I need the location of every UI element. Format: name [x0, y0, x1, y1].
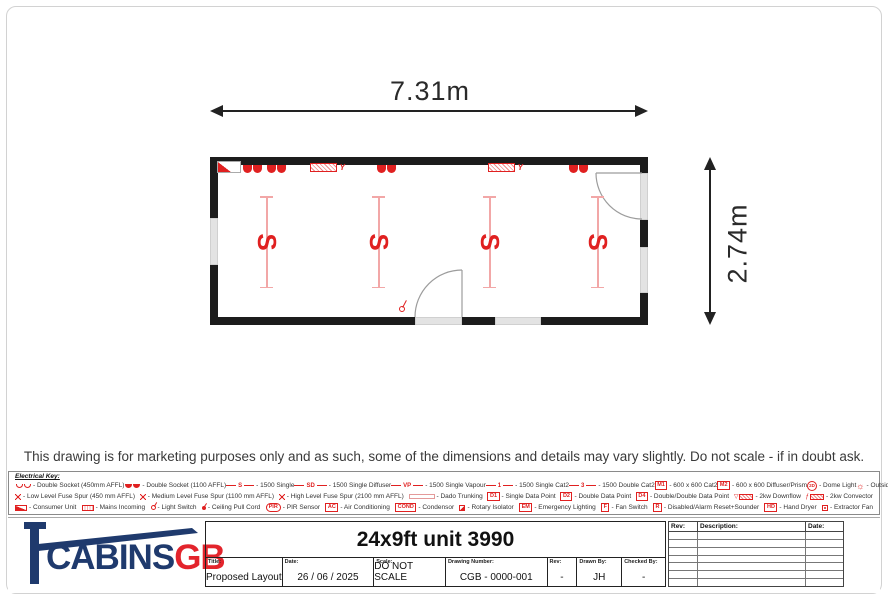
- pullcord-icon: [202, 506, 206, 510]
- strip-light-label: S: [366, 233, 392, 250]
- line-icon: 1: [486, 483, 513, 489]
- switch-icon: [151, 505, 156, 510]
- box-icon: D2: [560, 492, 572, 501]
- key-item: M1- 600 x 600 Cat2: [655, 481, 718, 490]
- line-icon: S: [226, 483, 254, 489]
- consumer-unit-icon: [217, 161, 241, 173]
- box-icon: D1: [487, 492, 499, 501]
- strip-light-label: S: [254, 233, 280, 250]
- key-item-label: - 1500 Single Diffuser: [329, 482, 391, 489]
- dado-icon: [409, 494, 435, 499]
- field-scale: Scale:DO NOT SCALE: [373, 558, 445, 586]
- electrical-key-title: Electrical Key:: [15, 473, 873, 480]
- key-item-label: - Fan Switch: [611, 504, 647, 511]
- key-item-label: - Emergency Lighting: [534, 504, 595, 511]
- humps-f-icon: [124, 484, 140, 488]
- field-drawingnumber: Drawing Number:CGB - 0000-001: [445, 558, 547, 586]
- field-value: 26 / 06 / 2025: [297, 572, 358, 583]
- box-icon: F: [601, 503, 609, 512]
- light-switch-icon: [399, 306, 405, 312]
- key-item-label: - Double Data Point: [574, 493, 631, 500]
- revision-header: Description:: [697, 522, 805, 531]
- logo-cabins: CABINS: [46, 538, 174, 577]
- window-left: [210, 218, 218, 265]
- double-socket-icon: [377, 165, 396, 173]
- key-item: COND- Condensor: [395, 503, 454, 512]
- key-item-label: - Mains Incoming: [96, 504, 146, 511]
- key-item: - Medium Level Fuse Spur (1100 mm AFFL): [140, 493, 274, 500]
- key-item: R- Disabled/Alarm Reset+Sounder: [653, 503, 759, 512]
- key-item: - 2kw Downflow: [734, 493, 801, 500]
- key-item-label: - 1500 Single Vapour: [425, 482, 486, 489]
- key-item: 2D- Dome Light: [807, 481, 856, 491]
- height-dimension-label: 2.74m: [723, 164, 754, 324]
- revision-row: [669, 540, 843, 548]
- key-item-label: - Medium Level Fuse Spur (1100 mm AFFL): [148, 493, 274, 500]
- field-value: CGB - 0000-001: [460, 572, 533, 583]
- cabinsgb-logo: CABINSGB: [22, 520, 217, 590]
- key-item-label: - Air Conditioning: [340, 504, 390, 511]
- key-item: - Rotary Isolator: [459, 504, 513, 511]
- key-item: - Low Level Fuse Spur (450 mm AFFL): [15, 493, 135, 500]
- line-icon: VP: [391, 483, 423, 489]
- circle-icon: 2D: [807, 481, 817, 491]
- key-item-label: - 1500 Single: [256, 482, 294, 489]
- field-checkedby: Checked By:-: [621, 558, 665, 586]
- key-item: - Consumer Unit: [15, 504, 76, 511]
- key-item-label: - High Level Fuse Spur (2100 mm AFFL): [287, 493, 404, 500]
- key-item: D4- Double/Double Data Point: [636, 492, 729, 501]
- key-item-label: - Ceiling Pull Cord: [208, 504, 260, 511]
- field-label: Title:: [208, 559, 221, 565]
- key-item-label: - Disabled/Alarm Reset+Sounder: [664, 504, 759, 511]
- strip-light: S: [368, 196, 390, 288]
- revision-row: [669, 556, 843, 564]
- key-item-label: - Hand Dryer: [779, 504, 816, 511]
- convector-heater-icon: [488, 163, 515, 172]
- consumer-icon: [15, 505, 27, 511]
- revision-row: [669, 563, 843, 571]
- double-socket-icon: [243, 165, 262, 173]
- extractor-icon: [822, 505, 828, 511]
- line-icon: 3: [569, 483, 596, 489]
- revision-row: [669, 532, 843, 540]
- key-row: - Low Level Fuse Spur (450 mm AFFL)- Med…: [15, 491, 873, 502]
- key-item-label: - Dado Trunking: [437, 493, 483, 500]
- key-item-label: - Double/Double Data Point: [650, 493, 729, 500]
- key-item: - Extractor Fan: [822, 504, 873, 511]
- mains-icon: [82, 505, 94, 511]
- field-label: Scale:: [376, 559, 392, 565]
- revision-row: [669, 571, 843, 579]
- spur-icon: [140, 494, 146, 500]
- key-item: 3- 1500 Double Cat2: [569, 482, 655, 489]
- title-box: 24x9ft unit 3990 Title:Proposed LayoutDa…: [205, 521, 666, 587]
- width-dimension-label: 7.31m: [330, 76, 530, 107]
- revision-table: Rev:Description:Date:: [668, 521, 844, 587]
- oval-icon: PIR: [266, 503, 281, 512]
- key-item-label: - 600 x 600 Diffuser/Prism: [732, 482, 807, 489]
- key-item-label: - Double Socket (450mm AFFL): [33, 482, 124, 489]
- box-icon: M2: [717, 481, 730, 490]
- key-item-label: - 2kw Convector: [826, 493, 873, 500]
- box-icon: M1: [655, 481, 668, 490]
- double-socket-icon: [569, 165, 588, 173]
- title-fields: Title:Proposed LayoutDate:26 / 06 / 2025…: [206, 557, 665, 586]
- box-icon: COND: [395, 503, 416, 512]
- key-item: HD- Hand Dryer: [764, 503, 816, 512]
- line-icon: SD: [294, 483, 326, 489]
- key-item: S- 1500 Single: [226, 482, 294, 489]
- downflow-icon: [734, 493, 754, 500]
- key-item: - Outside Light: [856, 482, 888, 490]
- field-value: -: [642, 572, 645, 583]
- key-row: - Double Socket (450mm AFFL)- Double Soc…: [15, 480, 873, 491]
- key-item-label: - Consumer Unit: [29, 504, 76, 511]
- revision-header: Rev:: [669, 522, 697, 531]
- strip-light: S: [479, 196, 501, 288]
- field-drawnby: Drawn By:JH: [576, 558, 621, 586]
- key-item-label: - 2kw Downflow: [755, 493, 801, 500]
- key-item-label: - PIR Sensor: [283, 504, 320, 511]
- key-item-label: - Condensor: [418, 504, 454, 511]
- key-item-label: - Extractor Fan: [830, 504, 873, 511]
- drawing-title: 24x9ft unit 3990: [206, 522, 665, 557]
- rotary-icon: [459, 505, 465, 511]
- key-item: D2- Double Data Point: [560, 492, 631, 501]
- convector-heater-icon: [310, 163, 337, 172]
- key-item: - 2kw Convector: [806, 493, 873, 500]
- field-rev: Rev:-: [547, 558, 577, 586]
- strip-light-label: S: [585, 233, 611, 250]
- key-item: EM- Emergency Lighting: [519, 503, 596, 512]
- revision-header-row: Rev:Description:Date:: [669, 522, 843, 532]
- key-item-label: - Single Data Point: [502, 493, 556, 500]
- key-item: AC- Air Conditioning: [325, 503, 389, 512]
- door-swing-bottom: [413, 268, 465, 320]
- box-icon: D4: [636, 492, 648, 501]
- key-item-label: - Rotary Isolator: [467, 504, 513, 511]
- key-item: - Ceiling Pull Cord: [202, 504, 260, 511]
- revision-row: [669, 579, 843, 586]
- field-value: JH: [593, 572, 605, 583]
- key-item: - Mains Incoming: [82, 504, 146, 511]
- box-icon: HD: [764, 503, 777, 512]
- key-item: VP- 1500 Single Vapour: [391, 482, 486, 489]
- key-item: F- Fan Switch: [601, 503, 648, 512]
- logo-text: CABINSGB: [46, 540, 225, 575]
- box-icon: R: [653, 503, 662, 512]
- convector-icon: [806, 494, 824, 500]
- key-item: SD- 1500 Single Diffuser: [294, 482, 391, 489]
- field-value: -: [560, 572, 563, 583]
- key-item-label: - Double Socket (1100 AFFL): [142, 482, 226, 489]
- field-date: Date:26 / 06 / 2025: [282, 558, 374, 586]
- humps-o-icon: [15, 484, 31, 488]
- drawing-sheet: { "colors": {"red":"#e02020","pink":"#f2…: [0, 0, 888, 600]
- key-item-label: - 1500 Double Cat2: [598, 482, 654, 489]
- key-item: - Light Switch: [151, 504, 197, 511]
- key-item-label: - Low Level Fuse Spur (450 mm AFFL): [23, 493, 135, 500]
- field-title: Title:Proposed Layout: [206, 558, 282, 586]
- key-item: D1- Single Data Point: [487, 492, 555, 501]
- box-icon: EM: [519, 503, 532, 512]
- field-label: Drawing Number:: [448, 559, 494, 565]
- revision-header: Date:: [805, 522, 843, 531]
- key-item: M2- 600 x 600 Diffuser/Prism: [717, 481, 807, 490]
- key-item-label: - Outside Light: [867, 482, 888, 489]
- key-item-label: - Light Switch: [158, 504, 197, 511]
- strip-light: S: [256, 196, 278, 288]
- key-item: - High Level Fuse Spur (2100 mm AFFL): [279, 493, 404, 500]
- electrical-key-rows: - Double Socket (450mm AFFL)- Double Soc…: [15, 480, 873, 513]
- key-item: 1- 1500 Single Cat2: [486, 482, 569, 489]
- strip-light: S: [587, 196, 609, 288]
- field-label: Rev:: [550, 559, 562, 565]
- key-item: - Double Socket (1100 AFFL): [124, 482, 226, 489]
- box-icon: AC: [325, 503, 338, 512]
- spur-icon: [15, 494, 21, 500]
- window-right: [640, 247, 648, 293]
- key-item-label: - 600 x 600 Cat2: [669, 482, 717, 489]
- key-item-label: - 1500 Single Cat2: [515, 482, 569, 489]
- field-label: Checked By:: [624, 559, 657, 565]
- strip-light-label: S: [477, 233, 503, 250]
- title-block: CABINSGB 24x9ft unit 3990 Title:Proposed…: [8, 517, 880, 593]
- key-item-label: - Dome Light: [819, 482, 856, 489]
- revision-row: [669, 548, 843, 556]
- double-socket-icon: [267, 165, 286, 173]
- key-row: - Consumer Unit- Mains Incoming- Light S…: [15, 502, 873, 513]
- spur-icon: [279, 494, 285, 500]
- rays-icon: [856, 482, 864, 490]
- key-item: - Double Socket (450mm AFFL): [15, 482, 124, 489]
- key-item: - Dado Trunking: [409, 493, 483, 500]
- field-value: Proposed Layout: [206, 572, 282, 583]
- electrical-key: Electrical Key: - Double Socket (450mm A…: [8, 471, 880, 515]
- field-label: Drawn By:: [579, 559, 606, 565]
- key-item: PIR- PIR Sensor: [266, 503, 320, 512]
- height-dimension-arrow: [709, 160, 711, 322]
- window-bottom: [495, 317, 541, 325]
- field-label: Date:: [285, 559, 299, 565]
- width-dimension-arrow: [213, 110, 645, 112]
- disclaimer-text: This drawing is for marketing purposes o…: [0, 449, 888, 464]
